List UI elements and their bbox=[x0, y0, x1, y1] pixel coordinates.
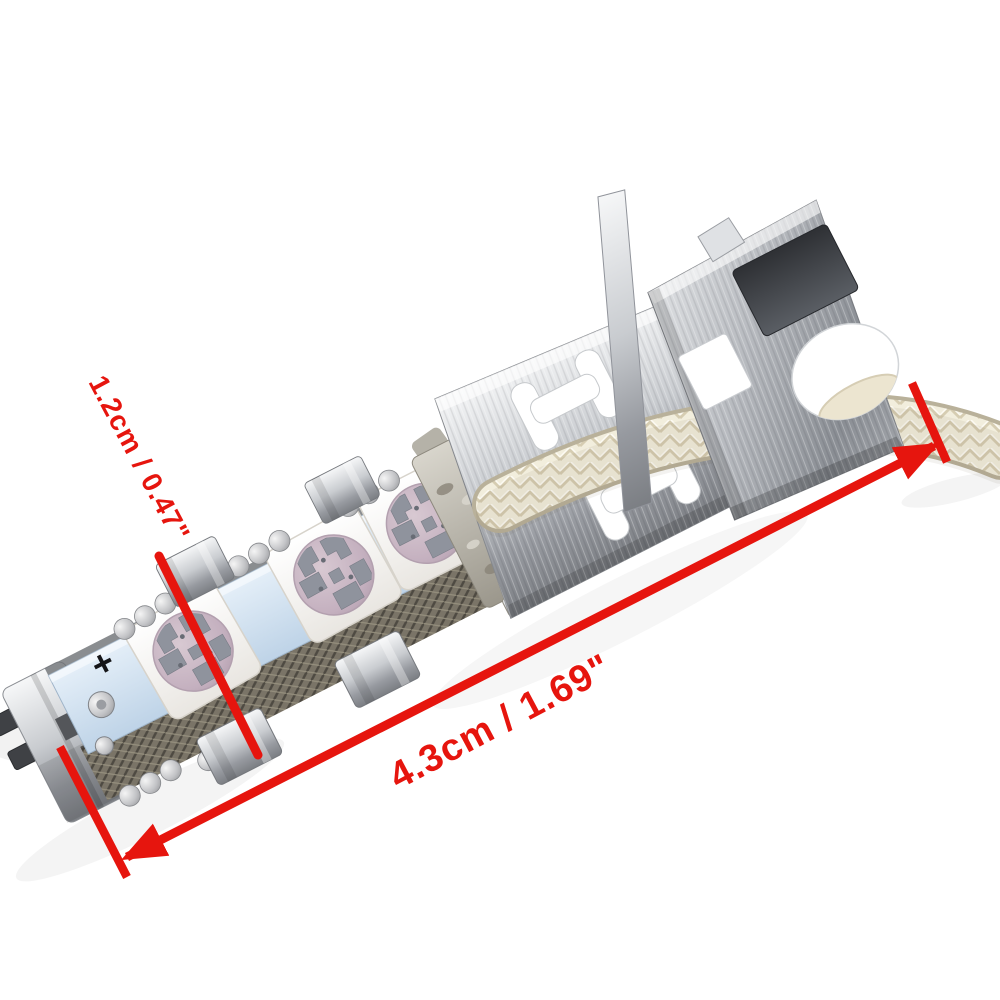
bulb-photo-canvas: + − bbox=[0, 0, 1000, 1000]
product-photo: + − bbox=[0, 0, 1000, 1000]
